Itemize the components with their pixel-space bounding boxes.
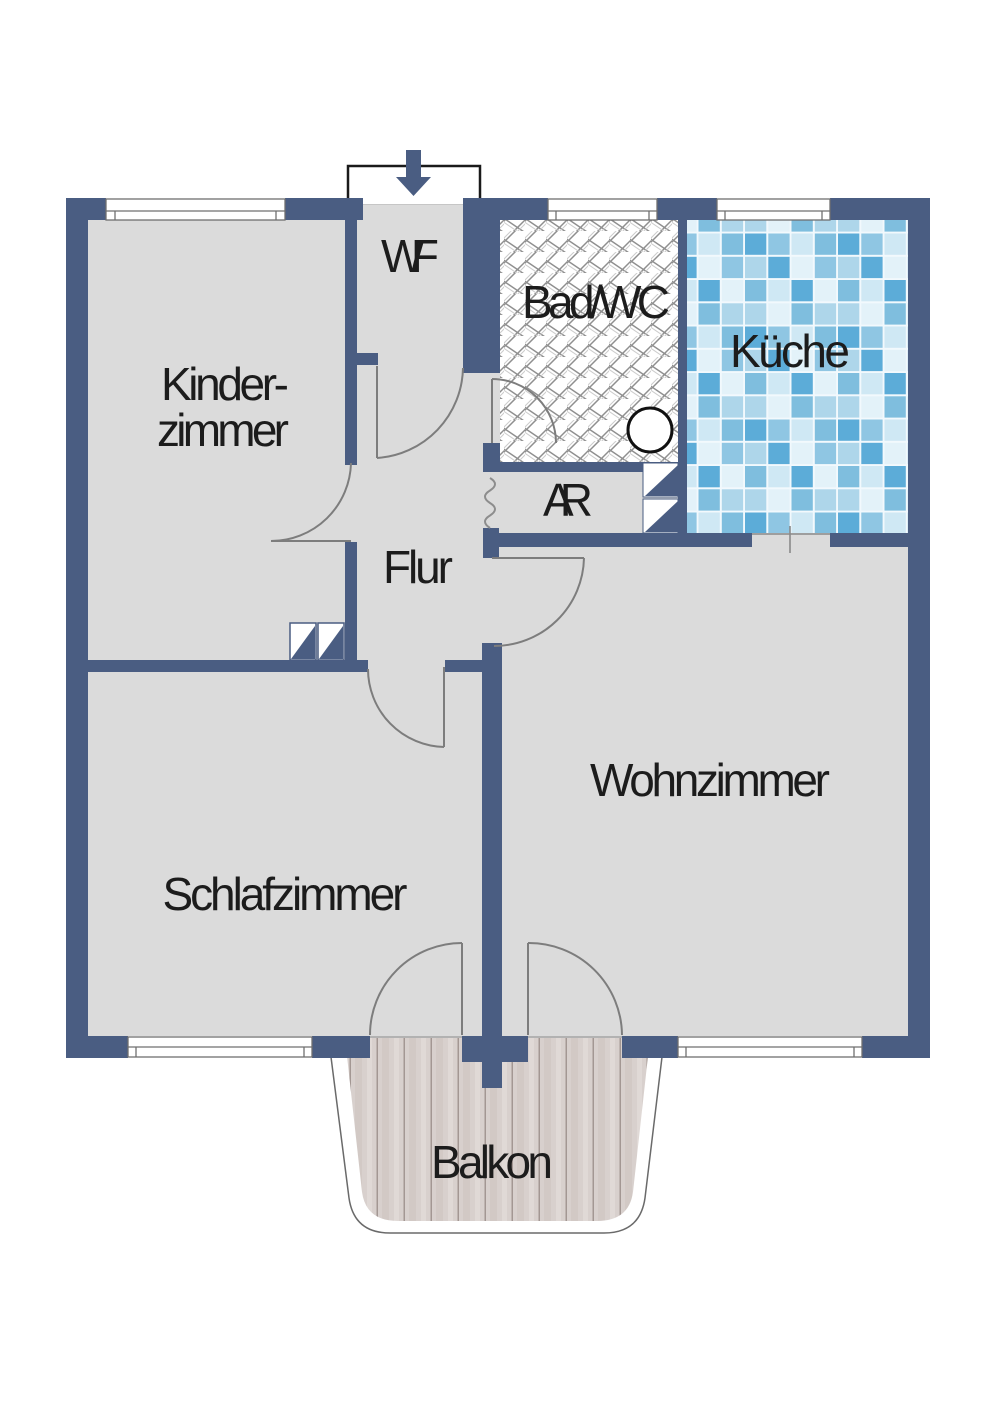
floorplan-page: Kinder- zimmer WF Bad/WC Küche AR Flur W… bbox=[0, 0, 1000, 1415]
label-kinderzimmer-line1: Kinder- bbox=[161, 358, 289, 410]
label-wohnzimmer: Wohnzimmer bbox=[590, 754, 830, 806]
label-kueche: Küche bbox=[730, 325, 850, 377]
window-wohnzimmer bbox=[678, 1037, 862, 1057]
window-bad bbox=[548, 199, 657, 220]
entrance-canopy bbox=[348, 150, 480, 206]
label-ar: AR bbox=[543, 474, 593, 526]
window-kueche bbox=[717, 199, 830, 220]
window-schlafzimmer bbox=[128, 1037, 312, 1057]
label-wf: WF bbox=[381, 230, 439, 282]
label-bad-wc: Bad/WC bbox=[522, 276, 670, 328]
label-balkon: Balkon bbox=[431, 1136, 553, 1188]
washbasin-icon bbox=[628, 408, 672, 452]
label-schlafzimmer: Schlafzimmer bbox=[163, 868, 408, 920]
entrance-threshold-floor bbox=[363, 205, 463, 222]
floorplan-drawing: Kinder- zimmer WF Bad/WC Küche AR Flur W… bbox=[0, 0, 1000, 1415]
label-kinderzimmer-line2: zimmer bbox=[157, 404, 289, 456]
window-kinderzimmer bbox=[106, 199, 285, 220]
label-flur: Flur bbox=[383, 541, 453, 593]
